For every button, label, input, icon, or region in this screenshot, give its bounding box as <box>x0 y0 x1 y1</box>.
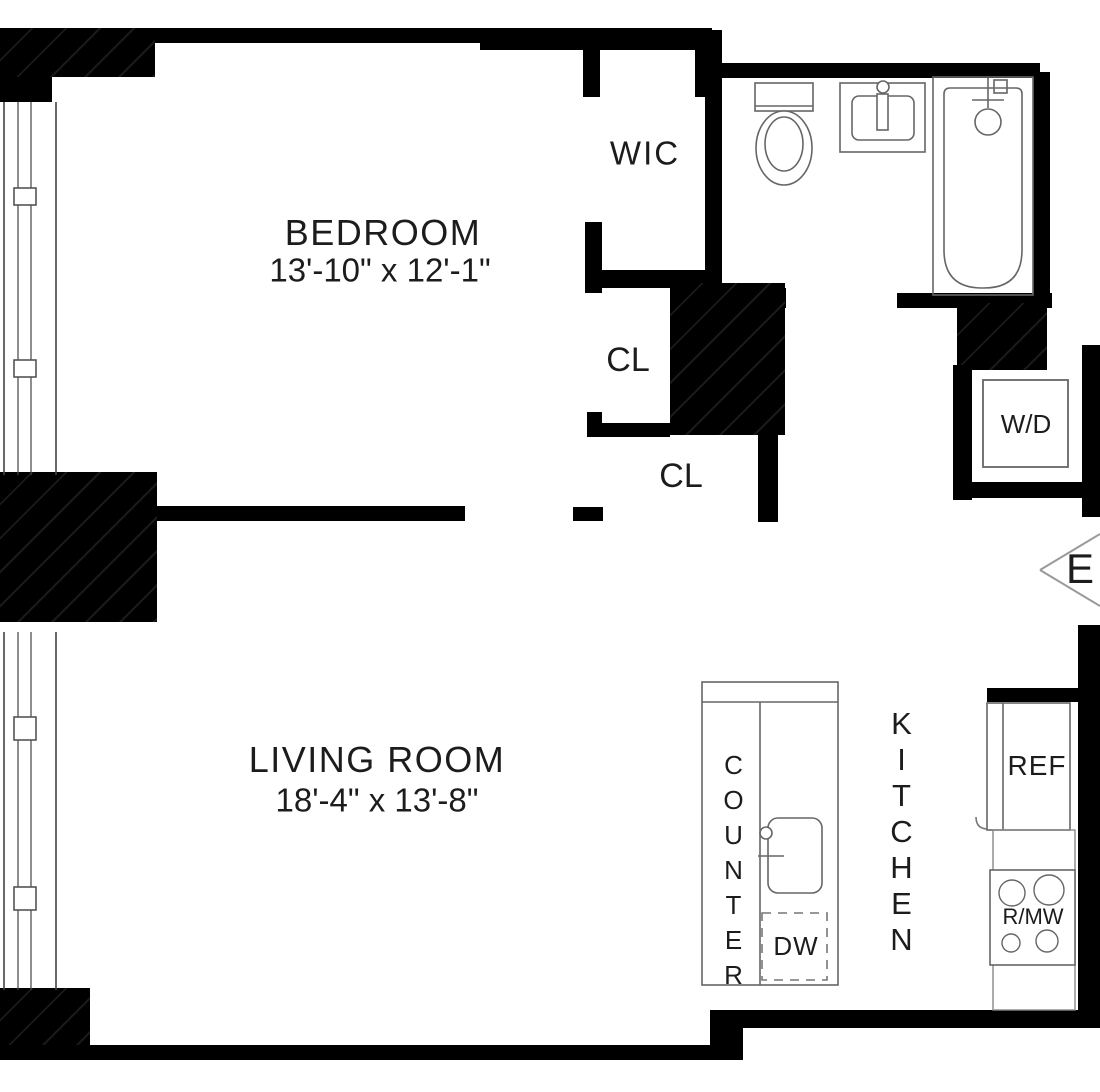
living-room-dimensions: 18'-4" x 13'-8" <box>276 784 479 817</box>
bathtub-icon <box>933 77 1033 295</box>
washer-dryer-label: W/D <box>1001 411 1052 437</box>
bedroom-window <box>4 102 56 475</box>
counter-label: COUNTER <box>718 750 749 995</box>
floor-plan: BEDROOM 13'-10" x 12'-1" LIVING ROOM 18'… <box>0 0 1100 1092</box>
wic-label: WIC <box>610 137 680 170</box>
refrigerator-label: REF <box>1008 752 1067 780</box>
fixtures-layer <box>0 0 1100 1092</box>
living-room-window <box>4 632 56 990</box>
dishwasher-label: DW <box>773 933 818 959</box>
compass-east-label: E <box>1066 548 1094 590</box>
living-room-label: LIVING ROOM <box>249 742 506 778</box>
closet-upper-label: CL <box>606 343 649 377</box>
bedroom-label: BEDROOM <box>285 215 482 251</box>
range-microwave-label: R/MW <box>1002 906 1063 928</box>
closet-lower-label: CL <box>659 459 702 493</box>
kitchen-label: KITCHEN <box>883 706 919 958</box>
bathroom-sink-icon <box>840 81 925 152</box>
toilet-icon <box>755 83 813 185</box>
bedroom-dimensions: 13'-10" x 12'-1" <box>269 254 490 287</box>
